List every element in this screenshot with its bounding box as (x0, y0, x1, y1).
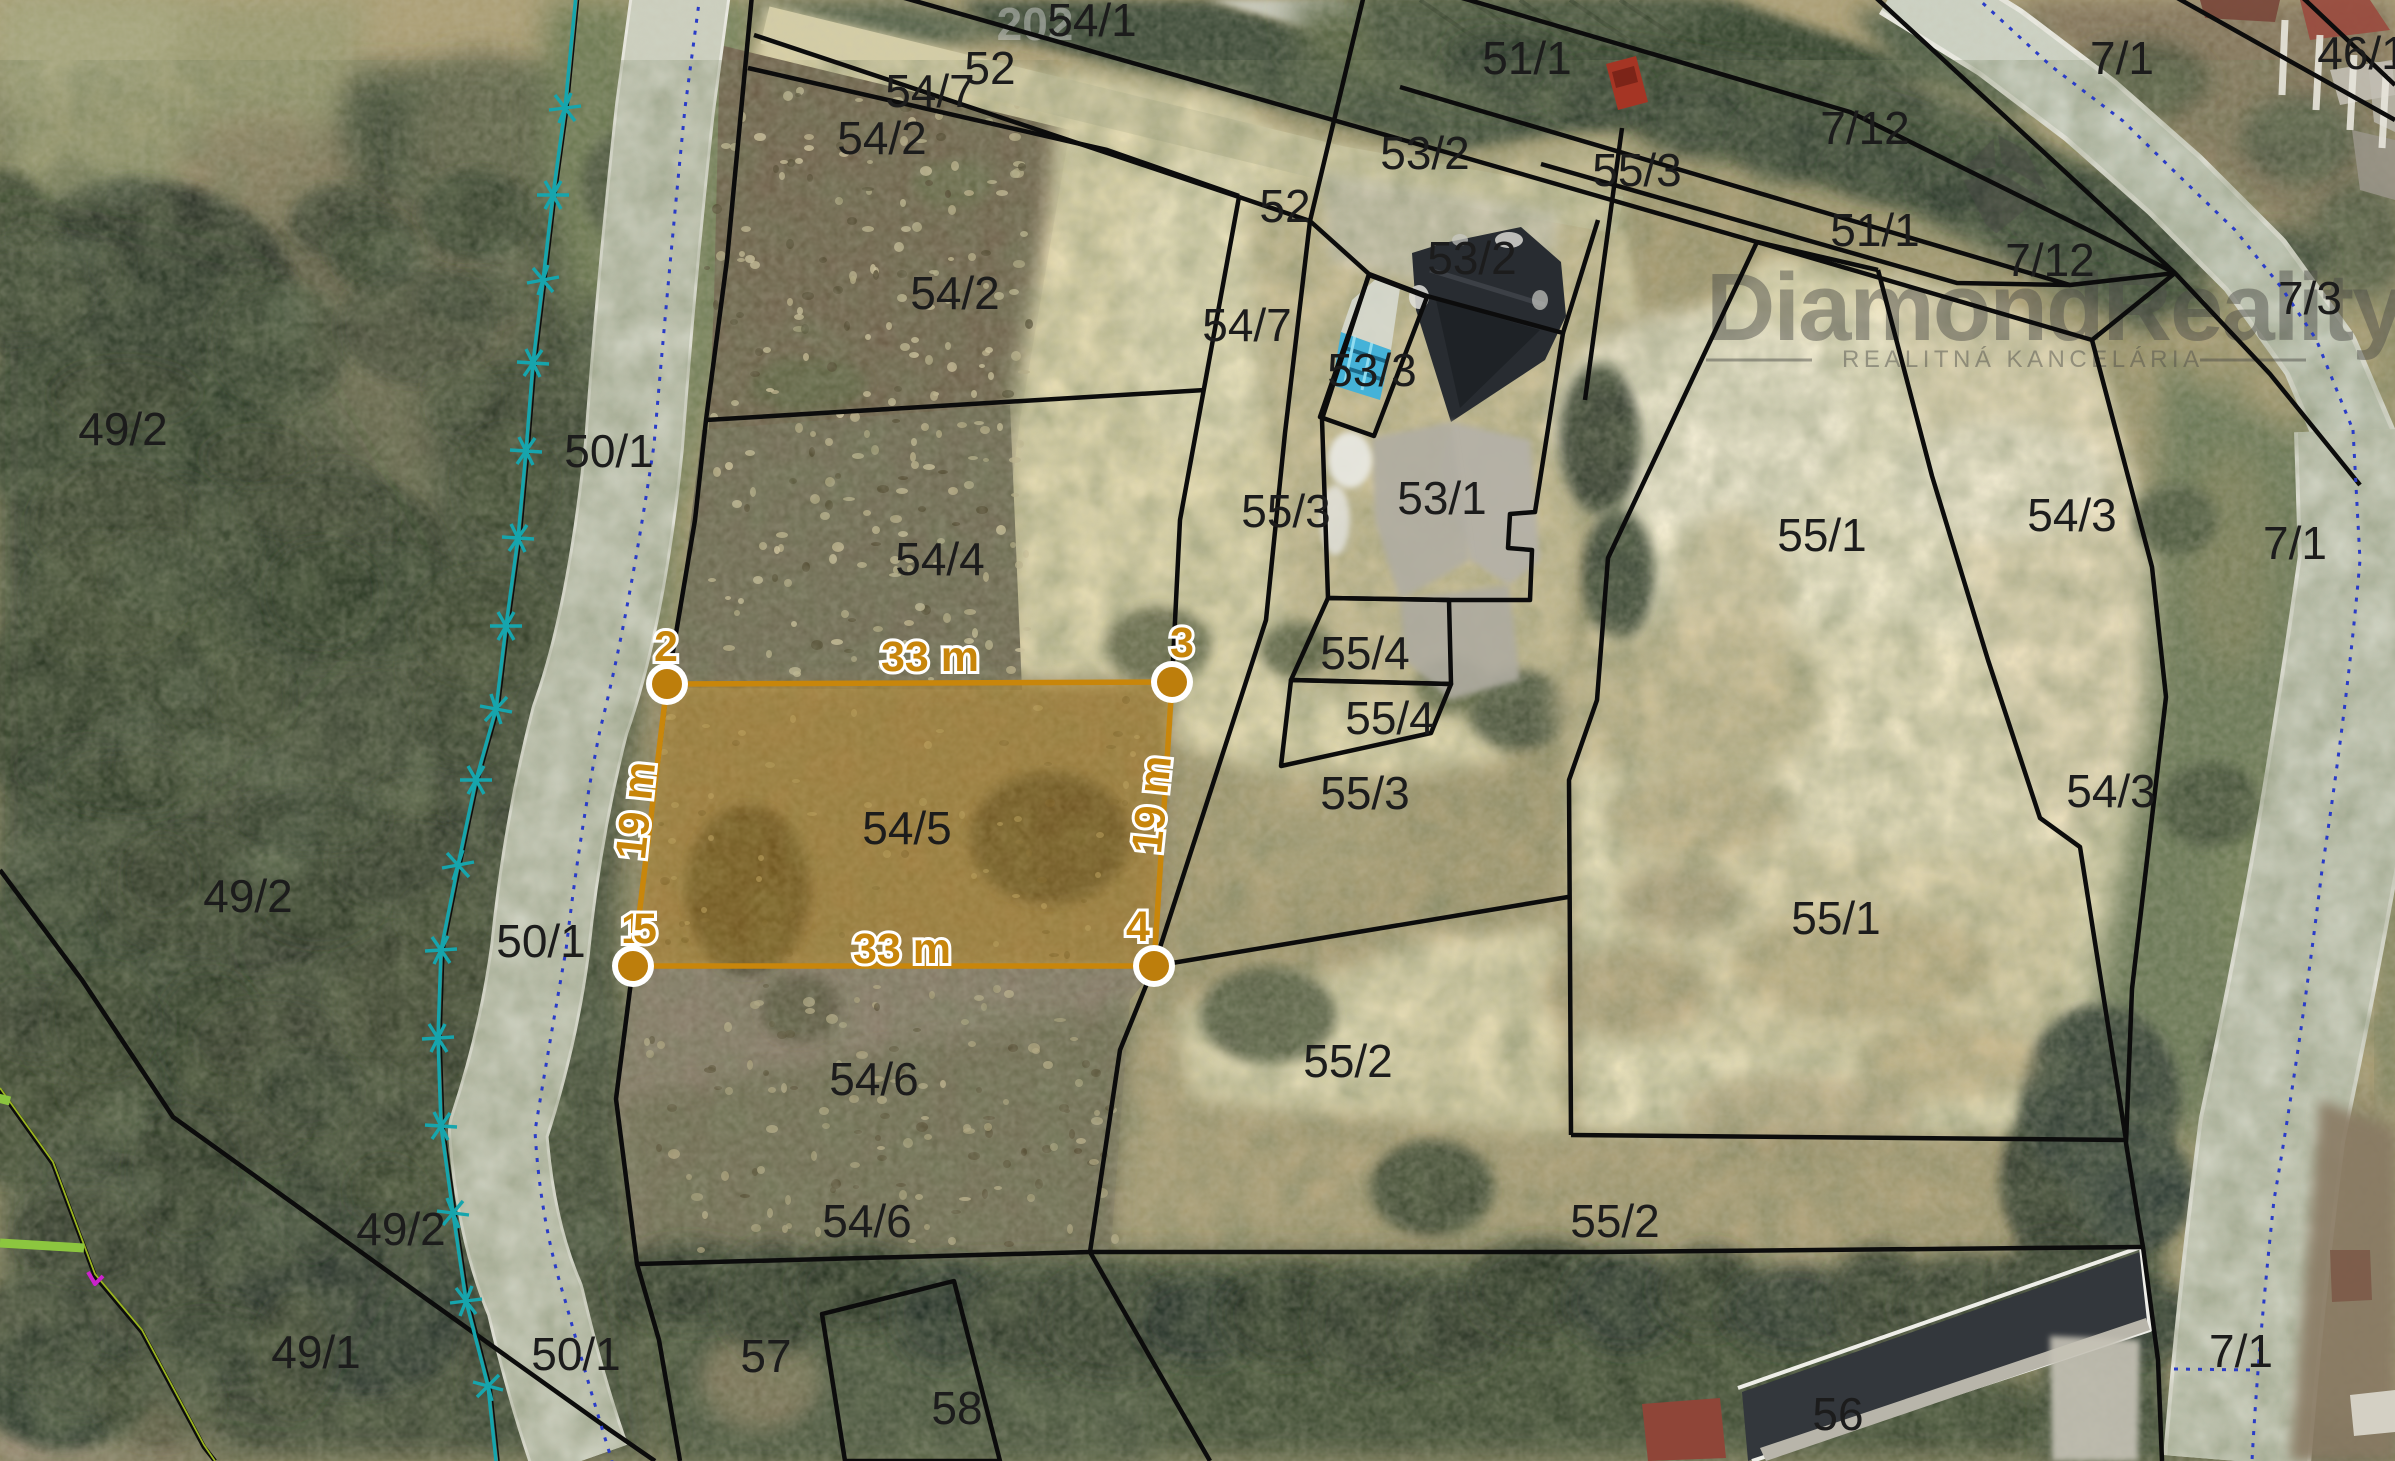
svg-text:55/3: 55/3 (1320, 767, 1410, 819)
svg-text:7/3: 7/3 (2278, 272, 2342, 324)
svg-text:7/1: 7/1 (2209, 1325, 2273, 1377)
svg-text:7/1: 7/1 (2090, 32, 2154, 84)
svg-text:55/2: 55/2 (1303, 1035, 1393, 1087)
svg-text:49/2: 49/2 (203, 870, 293, 922)
svg-text:55/1: 55/1 (1777, 509, 1867, 561)
svg-text:5: 5 (633, 905, 657, 953)
svg-text:33 m: 33 m (881, 633, 979, 681)
svg-text:3: 3 (1170, 619, 1194, 667)
svg-text:7/1: 7/1 (2263, 517, 2327, 569)
svg-text:55/4: 55/4 (1320, 627, 1410, 679)
svg-text:58: 58 (931, 1382, 982, 1434)
svg-text:54/1: 54/1 (1047, 0, 1137, 46)
svg-text:50/1: 50/1 (531, 1328, 621, 1380)
svg-text:19 m: 19 m (1123, 753, 1181, 855)
svg-text:54/7: 54/7 (885, 65, 975, 117)
svg-text:49/2: 49/2 (78, 403, 168, 455)
svg-text:33 m: 33 m (853, 925, 951, 973)
svg-text:55/3: 55/3 (1592, 144, 1682, 196)
svg-text:54/7: 54/7 (1202, 299, 1292, 351)
svg-text:55/3: 55/3 (1241, 485, 1331, 537)
svg-text:52: 52 (1259, 180, 1310, 232)
svg-text:4: 4 (1126, 903, 1150, 951)
svg-text:50/1: 50/1 (564, 425, 654, 477)
svg-text:46/1: 46/1 (2317, 27, 2395, 79)
svg-text:55/1: 55/1 (1791, 892, 1881, 944)
svg-text:REALITNÁ KANCELÁRIA: REALITNÁ KANCELÁRIA (1842, 346, 2204, 373)
svg-text:56: 56 (1812, 1388, 1863, 1440)
svg-text:49/2: 49/2 (356, 1203, 446, 1255)
svg-text:53/1: 53/1 (1397, 472, 1487, 524)
svg-text:54/3: 54/3 (2027, 489, 2117, 541)
svg-text:2: 2 (654, 623, 678, 671)
svg-text:51/1: 51/1 (1482, 32, 1572, 84)
svg-text:50/1: 50/1 (496, 915, 586, 967)
svg-text:7/12: 7/12 (1820, 102, 1910, 154)
svg-text:53/2: 53/2 (1380, 127, 1470, 179)
svg-text:53/3: 53/3 (1327, 344, 1417, 396)
svg-text:19 m: 19 m (607, 759, 665, 861)
svg-text:57: 57 (740, 1330, 791, 1382)
svg-text:7/12: 7/12 (2005, 234, 2095, 286)
svg-text:54/6: 54/6 (822, 1195, 912, 1247)
svg-text:54/4: 54/4 (895, 533, 985, 585)
svg-text:54/2: 54/2 (910, 267, 1000, 319)
svg-text:49/1: 49/1 (271, 1326, 361, 1378)
svg-text:54/3: 54/3 (2066, 765, 2156, 817)
svg-text:55/4: 55/4 (1345, 692, 1435, 744)
svg-text:55/2: 55/2 (1570, 1195, 1660, 1247)
svg-text:53/2: 53/2 (1427, 232, 1517, 284)
svg-text:54/6: 54/6 (829, 1053, 919, 1105)
svg-text:51/1: 51/1 (1830, 204, 1920, 256)
svg-text:54/5: 54/5 (862, 802, 952, 854)
svg-text:54/2: 54/2 (837, 112, 927, 164)
